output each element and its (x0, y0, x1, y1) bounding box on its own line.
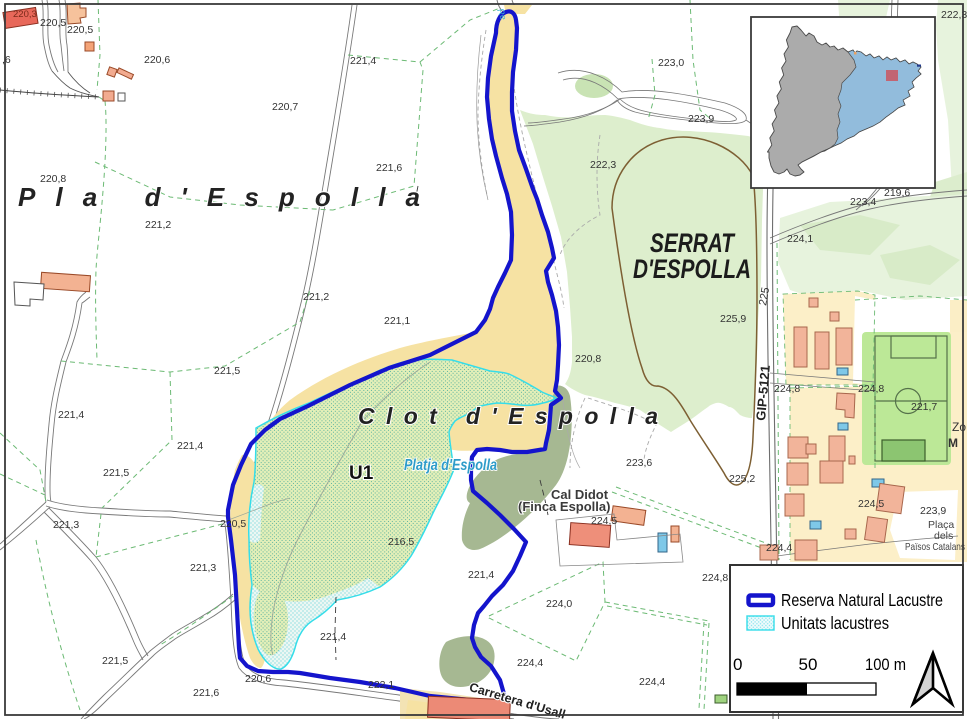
svg-text:224,8: 224,8 (702, 572, 728, 584)
svg-text:50: 50 (799, 655, 818, 674)
svg-text:Països Catalans: Països Catalans (905, 541, 965, 553)
svg-text:224,1: 224,1 (787, 233, 813, 245)
svg-text:224,4: 224,4 (639, 676, 665, 688)
svg-text:220,6: 220,6 (144, 54, 170, 66)
svg-text:221,3: 221,3 (190, 562, 216, 574)
svg-text:221,5: 221,5 (214, 365, 240, 377)
svg-text:0: 0 (733, 655, 742, 674)
svg-text:221,4: 221,4 (468, 569, 494, 581)
svg-text:220,7: 220,7 (272, 101, 298, 113)
svg-text:220,3: 220,3 (13, 9, 37, 20)
svg-text:224,5: 224,5 (591, 515, 617, 527)
svg-text:221,4: 221,4 (58, 409, 84, 421)
svg-text:Unitats lacustres: Unitats lacustres (781, 613, 889, 633)
svg-text:221,6: 221,6 (376, 162, 402, 174)
svg-text:222,3: 222,3 (590, 159, 616, 171)
svg-text:(Finca Espolla): (Finca Espolla) (518, 499, 610, 514)
svg-text:221,4: 221,4 (177, 440, 203, 452)
svg-text:221,4: 221,4 (320, 631, 346, 643)
svg-text:223,9: 223,9 (688, 113, 714, 125)
svg-text:224,0: 224,0 (546, 598, 572, 610)
svg-text:224,8: 224,8 (774, 383, 800, 395)
svg-text:222,1: 222,1 (368, 679, 394, 691)
svg-text:221,2: 221,2 (303, 291, 329, 303)
svg-text:Zo: Zo (952, 420, 966, 434)
svg-text:220,8: 220,8 (575, 353, 601, 365)
svg-text:221,6: 221,6 (193, 687, 219, 699)
svg-text:220,5: 220,5 (40, 17, 66, 29)
svg-text:225,9: 225,9 (720, 313, 746, 325)
svg-text:224,4: 224,4 (517, 657, 543, 669)
svg-text:221,5: 221,5 (103, 467, 129, 479)
svg-text:220,6: 220,6 (245, 673, 271, 685)
svg-text:223,4: 223,4 (850, 196, 876, 208)
svg-text:221,5: 221,5 (102, 655, 128, 667)
svg-text:221,7: 221,7 (911, 401, 937, 413)
svg-text:D'ESPOLLA: D'ESPOLLA (633, 254, 751, 284)
svg-text:223,0: 223,0 (658, 57, 684, 69)
svg-text:224,8: 224,8 (858, 383, 884, 395)
svg-text:223,6: 223,6 (626, 457, 652, 469)
svg-text:220,5: 220,5 (67, 24, 93, 36)
svg-text:U1: U1 (349, 463, 374, 484)
svg-text:221,2: 221,2 (145, 219, 171, 231)
svg-text:216,5: 216,5 (388, 536, 414, 548)
svg-text:223,9: 223,9 (920, 505, 946, 517)
svg-text:,6: ,6 (2, 54, 11, 66)
svg-text:Clot d'Espolla: Clot d'Espolla (358, 403, 658, 429)
svg-text:Reserva Natural Lacustre: Reserva Natural Lacustre (781, 590, 943, 610)
svg-text:100 m: 100 m (865, 655, 906, 674)
svg-text:221,4: 221,4 (350, 55, 376, 67)
svg-text:225,2: 225,2 (729, 473, 755, 485)
svg-text:M: M (948, 436, 958, 450)
svg-text:224,4: 224,4 (766, 542, 792, 554)
svg-text:Platja d'Espolla: Platja d'Espolla (404, 457, 497, 474)
svg-text:221,1: 221,1 (384, 315, 410, 327)
svg-text:221,3: 221,3 (53, 519, 79, 531)
svg-text:224,5: 224,5 (858, 498, 884, 510)
svg-text:220,5: 220,5 (220, 518, 246, 530)
